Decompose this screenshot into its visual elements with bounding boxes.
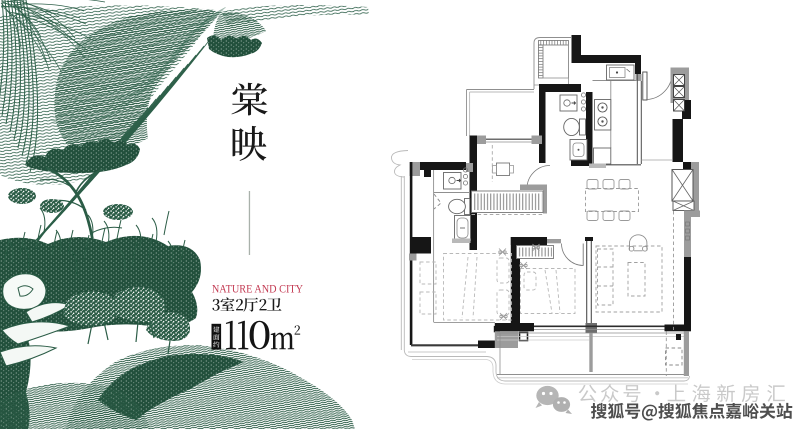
svg-text:NATURE AND CITY: NATURE AND CITY xyxy=(212,284,303,296)
